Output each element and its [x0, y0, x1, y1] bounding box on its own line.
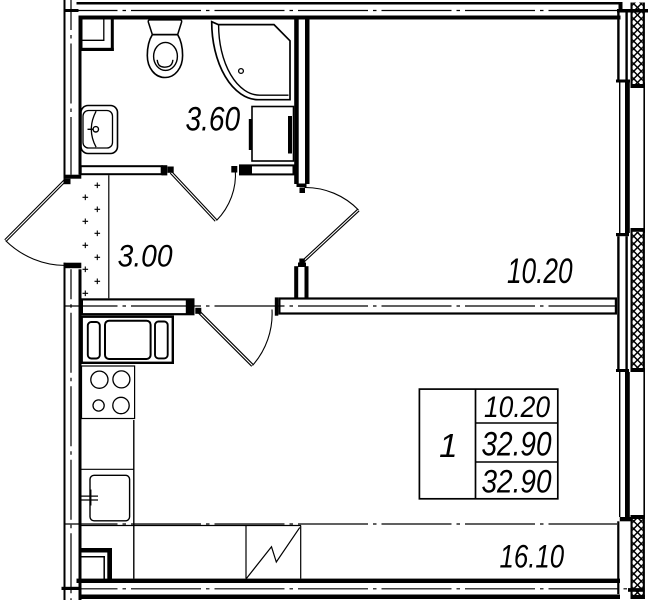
- svg-text:10.20: 10.20: [484, 391, 551, 424]
- svg-text:10.20: 10.20: [507, 252, 573, 291]
- svg-text:32.90: 32.90: [482, 462, 552, 499]
- svg-text:3.60: 3.60: [185, 101, 240, 139]
- svg-text:1: 1: [439, 427, 457, 464]
- svg-text:16.10: 16.10: [500, 538, 565, 574]
- svg-text:32.90: 32.90: [482, 425, 552, 463]
- svg-text:3.00: 3.00: [118, 237, 173, 273]
